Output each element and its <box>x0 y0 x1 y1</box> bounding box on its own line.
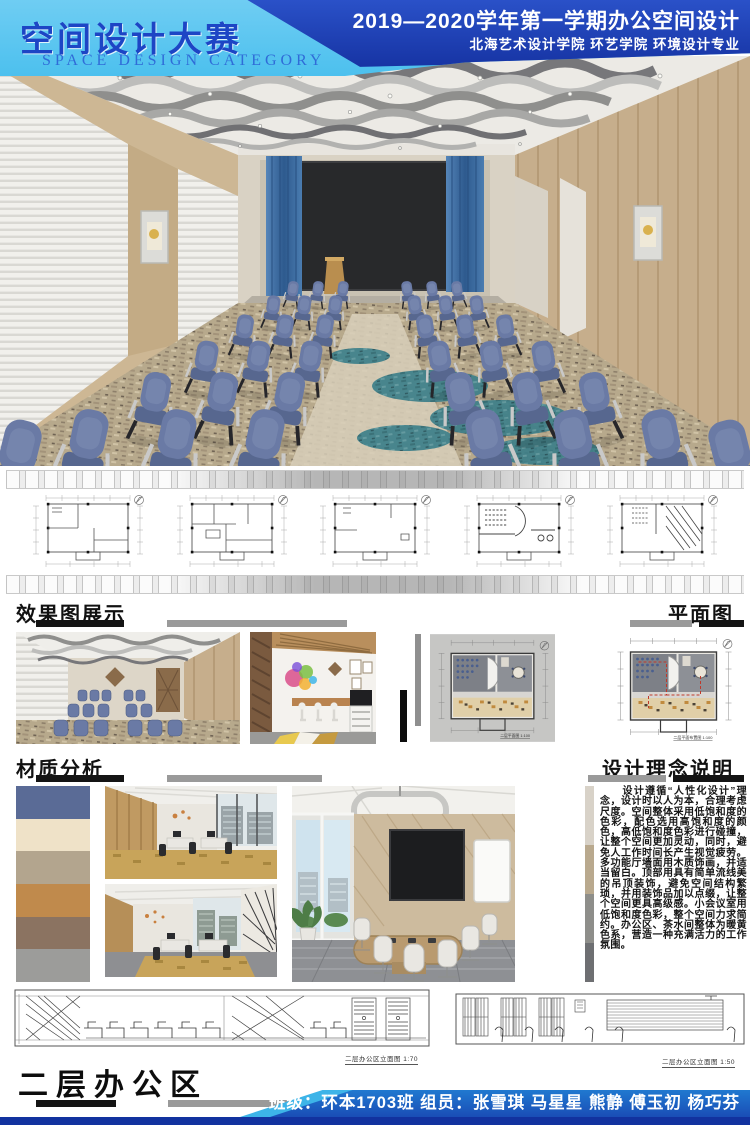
plan-thumbnail-1 <box>22 490 154 570</box>
underline-bar <box>699 620 744 627</box>
plan-thumbnail-5 <box>596 490 728 570</box>
material-swatch-oak-wood <box>16 884 90 917</box>
plan-thumbnail-3 <box>309 490 441 570</box>
poster-page: 空间设计大赛 SPACE DESIGN CATEGORY 2019—2020学年… <box>0 0 750 1125</box>
filmstrip-plans <box>0 490 750 572</box>
poster-subtitle-en: SPACE DESIGN CATEGORY <box>42 52 325 70</box>
plan-caption-1: 二层平面图 1:100 <box>500 733 530 738</box>
filmstrip-sprockets-top <box>6 470 744 489</box>
plan-thumbnail-2 <box>166 490 298 570</box>
underline-bar <box>630 620 692 627</box>
filmstrip-sprockets-bottom <box>6 575 744 594</box>
underline-bar <box>167 620 347 627</box>
material-swatch-blue-leather <box>16 786 90 819</box>
material-swatches <box>16 786 90 982</box>
underline-bar <box>588 775 666 782</box>
accent-bar-gray <box>415 634 421 726</box>
tv-screen <box>390 830 464 900</box>
wall-art-left <box>141 211 168 263</box>
render-meeting-room <box>292 786 515 982</box>
render-office-b <box>105 884 277 977</box>
elevation-caption-left: 二层办公区立面图 1:70 <box>345 1053 418 1065</box>
school-line: 北海艺术设计学院 环艺学院 环境设计专业 <box>469 33 740 53</box>
render-hall-small <box>16 632 240 744</box>
concept-paragraph: 设计遵循“人性化设计”理念，设计时以人为本，合理考虑尺度。空间整体采用低饱和度的… <box>600 787 747 983</box>
underline-bar <box>167 775 322 782</box>
elevation-left <box>14 988 430 1050</box>
material-swatch-gray-marble <box>16 949 90 982</box>
wall-art-right <box>634 206 662 260</box>
footer-navy-strip <box>0 1117 750 1125</box>
underline-bar <box>36 620 124 627</box>
colored-plan-2: 二层平面布置图 1:100 <box>605 632 742 744</box>
printer <box>350 690 372 732</box>
footer-credit-line: 班级：环本1703班 组员：张雪琪 马星星 熊静 傅玉初 杨巧芬 <box>269 1090 740 1117</box>
underline-bar <box>673 775 744 782</box>
material-swatch-walnut-wood <box>16 917 90 950</box>
whiteboard <box>474 840 510 902</box>
plan-caption-2: 二层平面布置图 1:100 <box>673 734 713 740</box>
plan-thumbnail-4 <box>453 490 585 570</box>
accent-bar-black <box>400 690 407 742</box>
material-swatch-greige-wood <box>16 851 90 884</box>
underline-bar <box>36 775 124 782</box>
render-tea-corner <box>250 632 376 744</box>
elevation-caption-right: 二层办公区立面图 1:50 <box>662 1056 735 1068</box>
render-strip-sliver <box>585 786 594 982</box>
material-swatch-cream-texture <box>16 819 90 852</box>
render-office-a <box>105 786 277 879</box>
elevation-right <box>455 992 745 1047</box>
colored-plan-1: 二层平面图 1:100 <box>430 632 555 744</box>
footer-band: 班级：环本1703班 组员：张雪琪 马星星 熊静 傅玉初 杨巧芬 <box>0 1090 750 1117</box>
term-line: 2019—2020学年第一学期办公空间设计 <box>353 5 740 35</box>
hero-render-lecture-hall <box>0 56 750 466</box>
